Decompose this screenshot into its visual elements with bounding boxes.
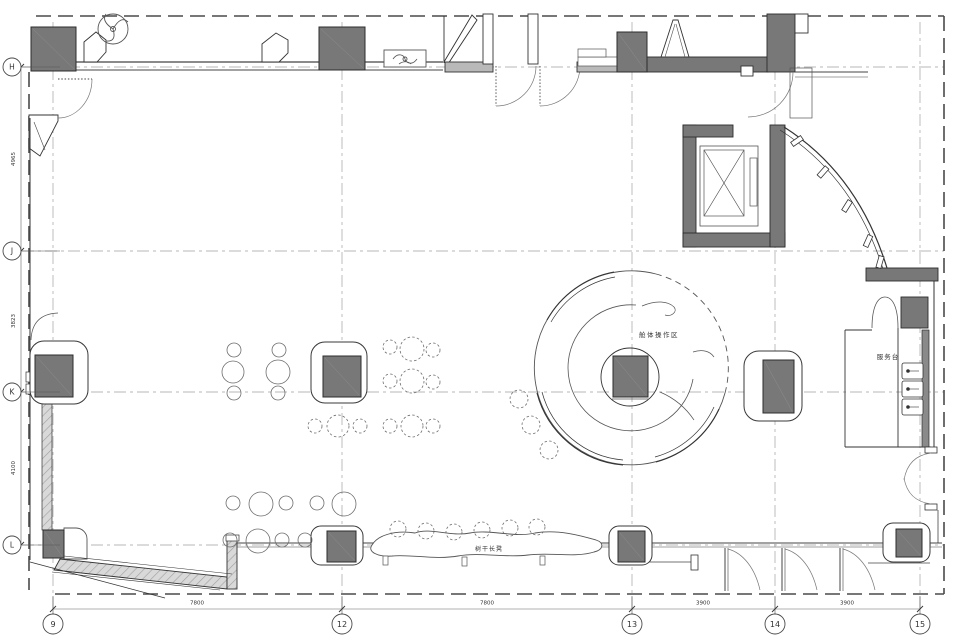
label-cabin-operation-area: 舱体操作区: [639, 330, 679, 339]
axis-bubble-label: J: [10, 247, 13, 256]
stool-circle: [353, 419, 367, 433]
dimension-text: 7800: [190, 601, 204, 607]
angled-door-leaf: [444, 15, 477, 64]
dimension-text: 3823: [11, 314, 17, 328]
entry-door-top-left: [58, 79, 92, 118]
elevator-slot: [750, 158, 757, 206]
floor-plan-sheet: 7800780039003900496538234100912131415HJK…: [0, 0, 960, 643]
stool-circle: [327, 415, 349, 437]
dimension-text: 4100: [11, 461, 17, 475]
stool-circle: [540, 441, 558, 459]
stool-circle: [510, 390, 528, 408]
stool-circle: [308, 419, 322, 433]
dimension-text: 4965: [11, 152, 17, 166]
mullion-tick: [817, 166, 829, 178]
stool-circle: [227, 386, 241, 400]
step-1: [578, 57, 618, 66]
curtain-wall-curve: [780, 127, 887, 269]
axis-bubble-label: 12: [337, 620, 347, 629]
wall-return-right: [262, 33, 288, 62]
stool-circle: [522, 416, 540, 434]
shaft-vent: [790, 68, 812, 118]
arch-door: [872, 297, 898, 328]
furniture-layer: [30, 27, 930, 591]
stool-circle: [271, 386, 285, 400]
stool-circle: [310, 496, 324, 510]
thick-wall-topright: [767, 14, 795, 72]
elevator-x-symbol: [704, 150, 744, 216]
stool-circle: [249, 492, 273, 516]
stool-circle: [426, 375, 440, 389]
top-perimeter-wall: [29, 14, 868, 156]
step-2: [578, 49, 606, 57]
stool-circle: [226, 496, 240, 510]
wall-return-left: [84, 32, 106, 62]
stool-circle: [426, 343, 440, 357]
door-swing-arc: [843, 549, 875, 590]
wall-hatch-strip: [42, 398, 52, 530]
stool-circle: [272, 343, 286, 357]
stool-circle: [383, 419, 397, 433]
elevator-lobby-door-arc: [748, 72, 793, 117]
stool-circle: [246, 529, 270, 553]
bench-leg: [540, 556, 545, 565]
stool-circle: [400, 369, 424, 393]
axis-bubble-label: H: [9, 63, 15, 72]
swing-door-1: [496, 66, 536, 106]
door-swing-arc: [785, 549, 817, 590]
propeller-symbol: [384, 50, 426, 67]
double-swing-door-peak: [661, 20, 689, 57]
corner-bench: [64, 528, 87, 559]
elevator: [683, 66, 812, 247]
label-tree-trunk-bench: 树干长凳: [475, 545, 503, 553]
stool-circle: [266, 360, 290, 384]
stool-circle: [401, 415, 423, 437]
stool-circle: [383, 340, 397, 354]
exterior-boundary: [29, 16, 944, 594]
stool-circle: [279, 496, 293, 510]
pier-1: [483, 14, 493, 64]
stool-circle: [400, 337, 424, 361]
mullion-tick: [876, 256, 884, 269]
dimension-text: 3900: [840, 601, 854, 607]
swing-door-2: [540, 66, 580, 106]
mullion-tick: [791, 136, 804, 147]
axis-bubble-label: 15: [915, 620, 925, 629]
floor-plan-drawing: 7800780039003900496538234100912131415HJK…: [0, 0, 960, 643]
stool-circle: [222, 361, 244, 383]
stool-circle: [227, 343, 241, 357]
wall-stub-topright: [795, 14, 808, 33]
pier-2: [528, 14, 538, 64]
mullion-tick: [863, 235, 872, 248]
grid-lines-layer: [22, 22, 944, 614]
door-jamb: [741, 66, 753, 76]
bench-leg: [462, 557, 467, 566]
door-swing-arc: [728, 549, 760, 590]
label-service-desk: 服务台: [877, 352, 900, 361]
dimension-text: 3900: [696, 601, 710, 607]
axis-bubble-label: 14: [770, 620, 780, 629]
axis-bubble-label: 13: [627, 620, 637, 629]
ceiling-fan-icon: [98, 14, 128, 44]
axis-bubble-label: 9: [50, 620, 55, 629]
stool-circle: [426, 419, 440, 433]
mullion-tick: [842, 200, 853, 213]
stool-circle: [383, 374, 397, 388]
wedge-wall: [29, 115, 58, 156]
stool-circle: [332, 492, 356, 516]
dimension-text: 7800: [480, 601, 494, 607]
bench-leg: [383, 556, 388, 565]
